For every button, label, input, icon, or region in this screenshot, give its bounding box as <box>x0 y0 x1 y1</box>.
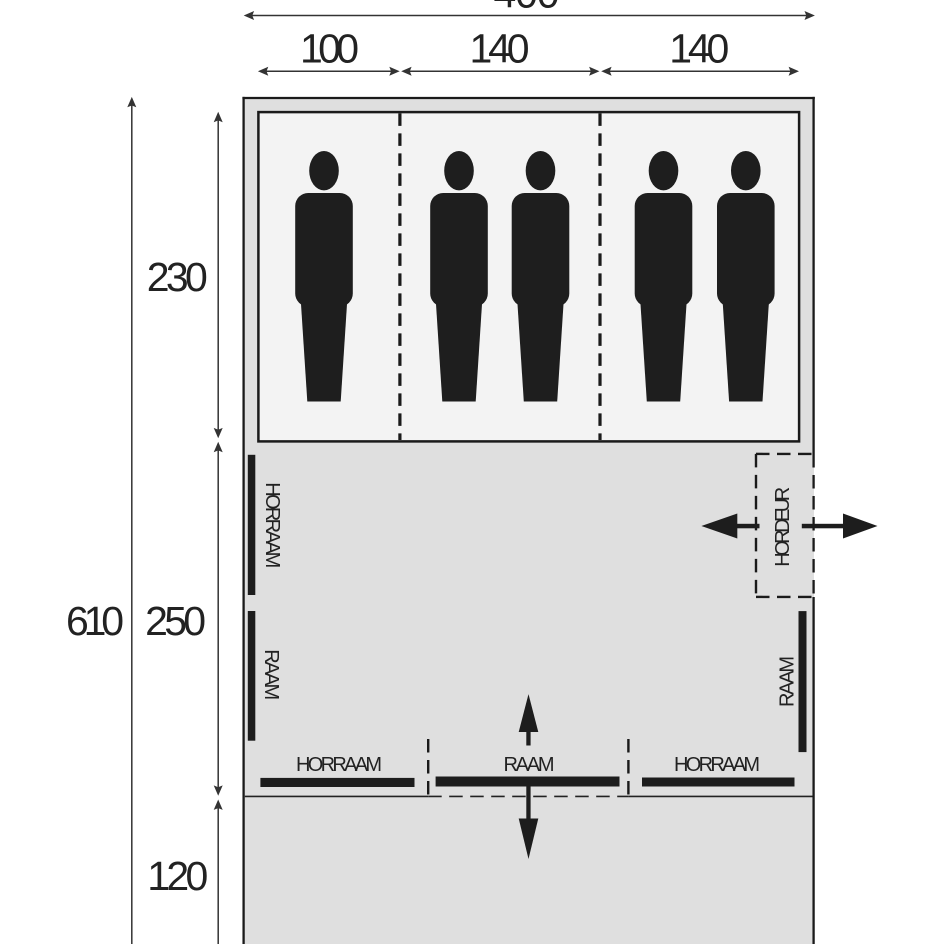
svg-text:HORRAAM: HORRAAM <box>674 754 760 776</box>
svg-text:HORDEUR: HORDEUR <box>772 487 794 567</box>
svg-text:140: 140 <box>470 25 530 71</box>
svg-text:250: 250 <box>145 598 206 644</box>
svg-text:RAAM: RAAM <box>504 754 555 776</box>
svg-text:120: 120 <box>147 853 208 899</box>
svg-text:610: 610 <box>66 598 124 644</box>
svg-text:400: 400 <box>494 0 560 17</box>
svg-text:100: 100 <box>300 25 359 71</box>
svg-text:HORRAAM: HORRAAM <box>261 482 283 568</box>
svg-text:RAAM: RAAM <box>777 656 799 707</box>
svg-text:HORRAAM: HORRAAM <box>296 754 382 776</box>
svg-text:230: 230 <box>147 254 208 300</box>
svg-text:RAAM: RAAM <box>260 649 282 700</box>
svg-text:140: 140 <box>669 25 729 71</box>
